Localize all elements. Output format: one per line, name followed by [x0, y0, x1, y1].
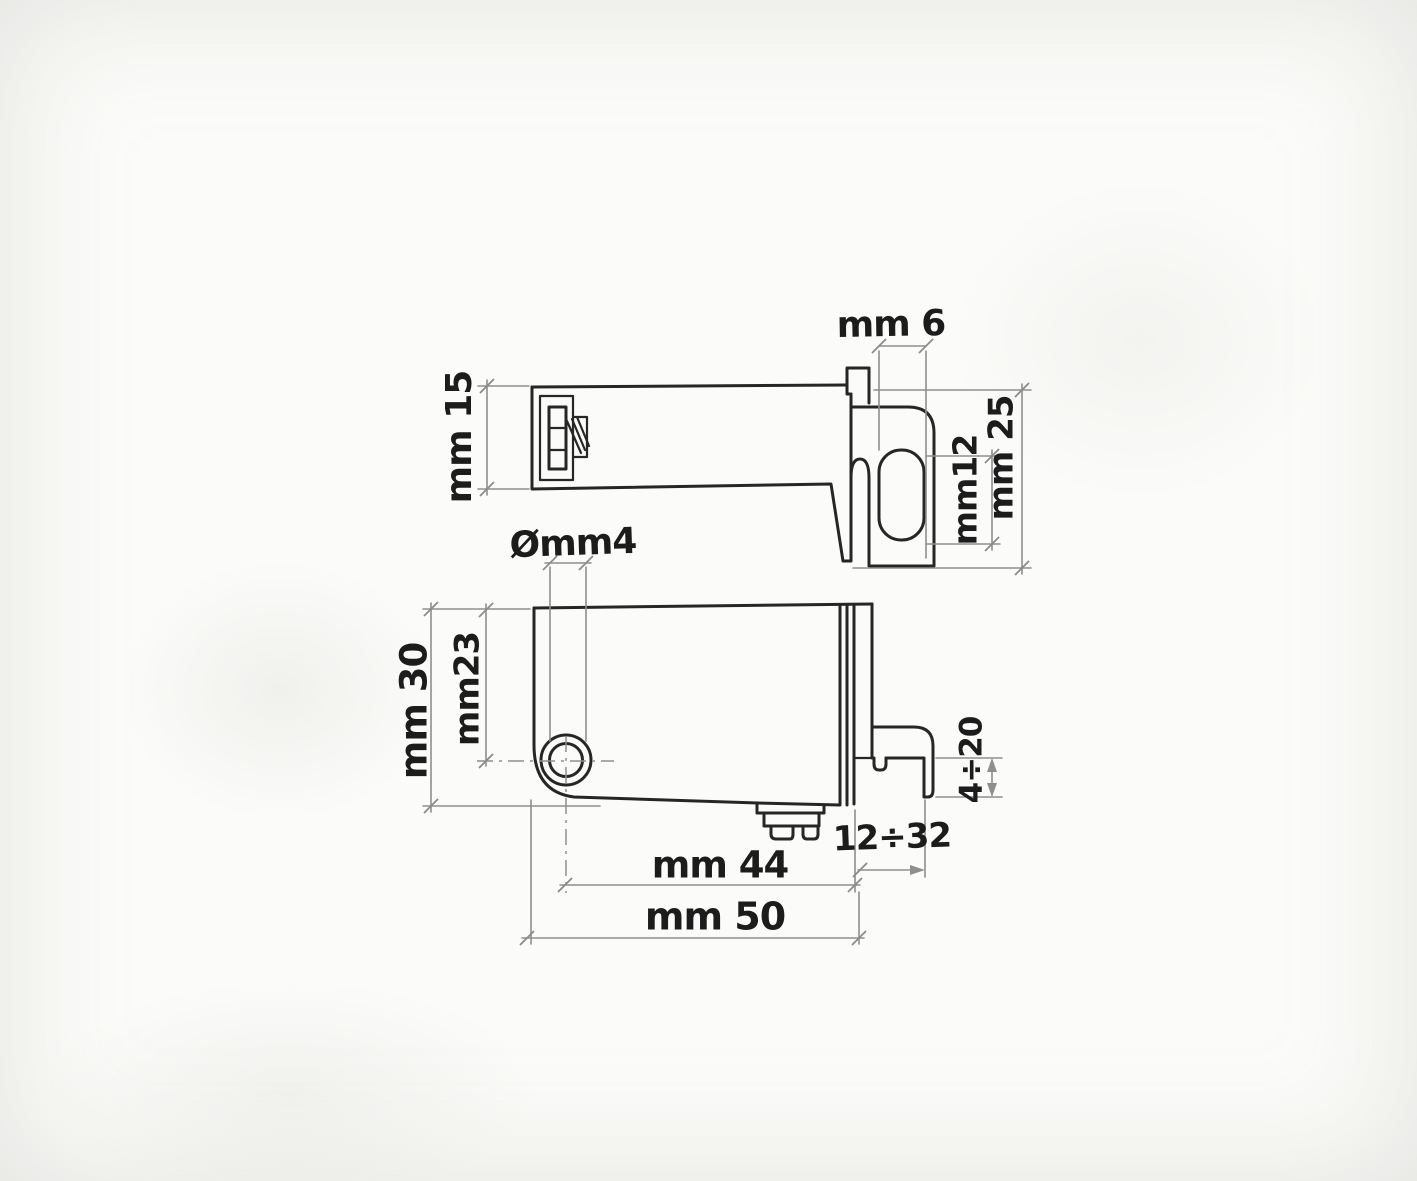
side-view-dimensions — [423, 556, 1002, 945]
label-leg-travel-4-20: 4÷20 — [954, 716, 990, 803]
label-slot-width-mm6: mm 6 — [836, 303, 945, 346]
technical-drawing: mm 15 mm 6 mm12 mm 25 Ømm4 mm 30 mm23 mm… — [0, 0, 1417, 1181]
label-body-height-mm15: mm 15 — [439, 371, 480, 504]
label-total-length-mm50: mm 50 — [645, 895, 785, 939]
label-total-height-mm30: mm 30 — [393, 643, 436, 779]
label-hole-center-height-mm23: mm23 — [448, 632, 488, 746]
screw-hatching — [567, 417, 589, 453]
label-hole-diameter-mm4: Ømm4 — [509, 521, 637, 566]
label-bracket-height-mm25: mm 25 — [982, 395, 1022, 520]
label-bracket-travel-12-32: 12÷32 — [832, 815, 951, 859]
label-slot-length-mm12: mm12 — [946, 435, 985, 546]
label-hole-to-end-mm44: mm 44 — [652, 844, 789, 887]
side-view-part — [534, 604, 933, 839]
hole-centerlines — [477, 736, 614, 893]
drawing-canvas: mm 15 mm 6 mm12 mm 25 Ømm4 mm 30 mm23 mm… — [0, 0, 1417, 1181]
